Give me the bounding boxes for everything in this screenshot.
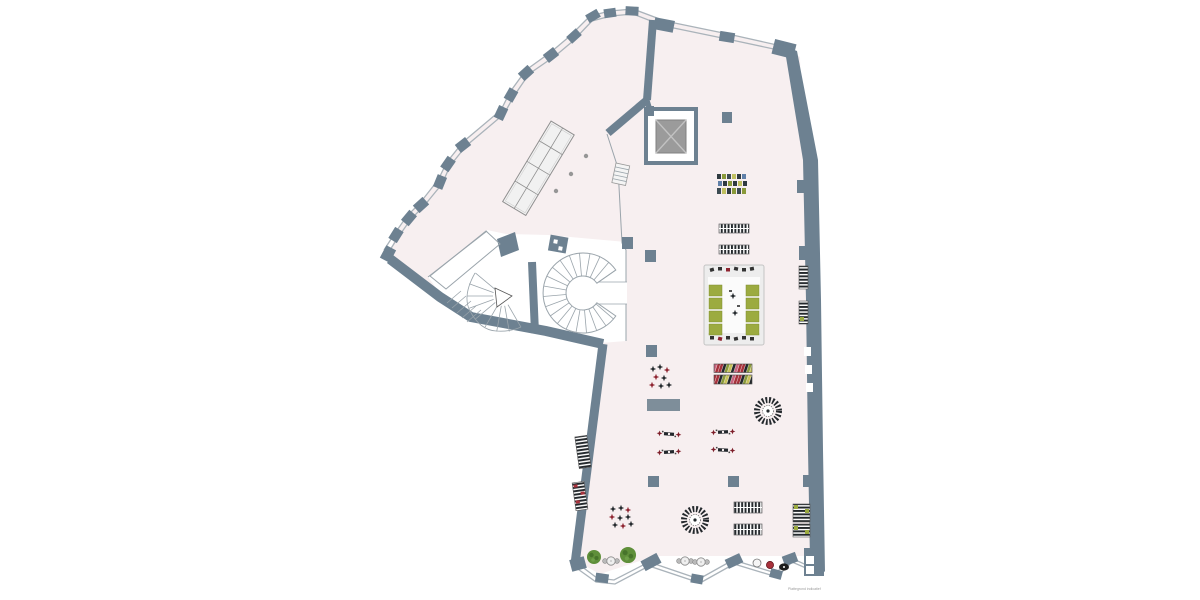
striped-shelf-north-2 <box>719 245 749 254</box>
elevator <box>646 106 696 163</box>
stair-wall-vertical <box>532 262 535 333</box>
seating-platform <box>704 265 764 345</box>
tree-icon <box>587 550 601 564</box>
tree-icon <box>620 547 636 563</box>
striped-shelf-north-1 <box>719 224 749 233</box>
floorplan-page: Plattegrond indicatief <box>0 0 1200 600</box>
round-table-red <box>766 561 773 568</box>
floorplan-canvas: Plattegrond indicatief <box>0 0 1200 600</box>
wall-shelf-east-1 <box>799 266 808 289</box>
cafe-table-2 <box>677 557 694 565</box>
cafe-table-3 <box>693 558 710 566</box>
round-table-white <box>753 559 761 567</box>
stair-door-chunk <box>548 235 569 254</box>
gondola-east-1 <box>793 504 810 522</box>
low-wall-bench <box>647 399 680 411</box>
striped-shelf-south-2 <box>734 524 762 535</box>
gondola-east-2 <box>793 524 810 537</box>
striped-shelf-south-1 <box>734 502 762 513</box>
plan-credit-text: Plattegrond indicatief <box>788 587 821 591</box>
wall-shelf-east-2 <box>799 301 808 324</box>
